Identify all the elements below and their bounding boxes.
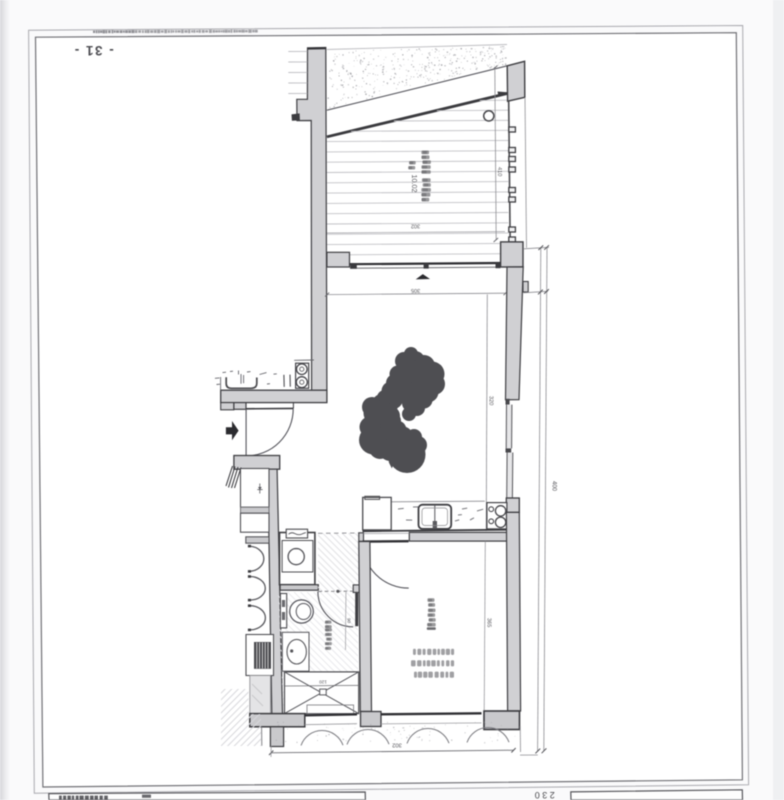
svg-text:410: 410	[496, 167, 502, 176]
svg-text:365: 365	[486, 618, 492, 627]
svg-text:120: 120	[319, 679, 327, 684]
svg-text:302: 302	[411, 223, 420, 229]
svg-text:305: 305	[411, 287, 420, 293]
svg-text:90: 90	[347, 618, 352, 624]
svg-text:302: 302	[392, 741, 402, 747]
svg-text:230: 230	[532, 790, 555, 800]
svg-text:10.02: 10.02	[410, 175, 419, 193]
svg-text:320: 320	[487, 396, 493, 405]
svg-text:- 31 -: - 31 -	[73, 43, 114, 58]
svg-text:400: 400	[551, 481, 557, 492]
